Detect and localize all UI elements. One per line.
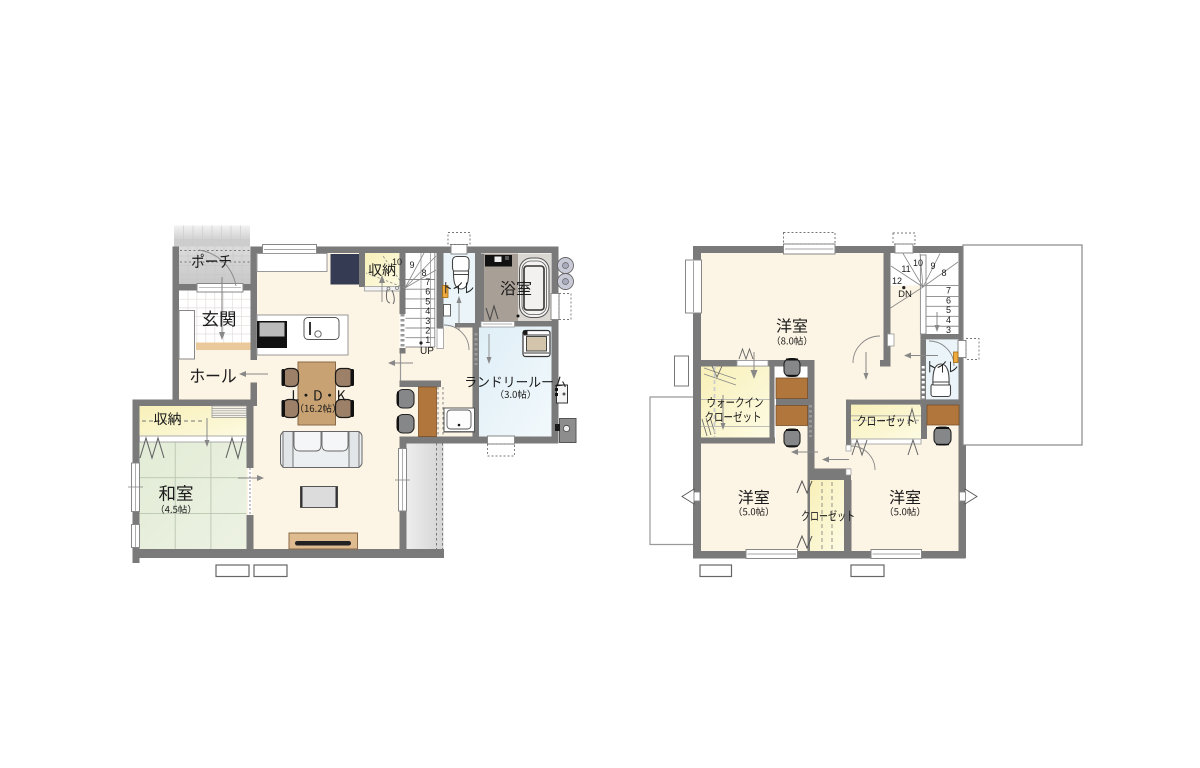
svg-text:10: 10: [392, 257, 402, 267]
svg-text:5: 5: [946, 305, 951, 315]
svg-text:11: 11: [901, 264, 910, 274]
svg-text:8: 8: [421, 268, 426, 278]
svg-text:UP: UP: [420, 346, 434, 357]
svg-text:3: 3: [425, 316, 430, 326]
svg-text:3: 3: [946, 325, 951, 335]
svg-text:DN: DN: [898, 289, 912, 300]
svg-text:2: 2: [425, 326, 430, 336]
svg-text:6: 6: [425, 287, 430, 297]
svg-text:9: 9: [930, 261, 935, 271]
svg-text:10: 10: [913, 258, 923, 268]
svg-text:9: 9: [409, 260, 414, 270]
svg-text:12: 12: [892, 276, 902, 286]
svg-text:5: 5: [425, 296, 430, 306]
svg-text:7: 7: [946, 285, 951, 295]
svg-text:4: 4: [946, 315, 951, 325]
svg-text:1: 1: [425, 335, 430, 345]
svg-text:6: 6: [946, 295, 951, 305]
svg-text:4: 4: [425, 306, 430, 316]
svg-text:8: 8: [941, 268, 946, 278]
svg-text:7: 7: [425, 277, 430, 287]
